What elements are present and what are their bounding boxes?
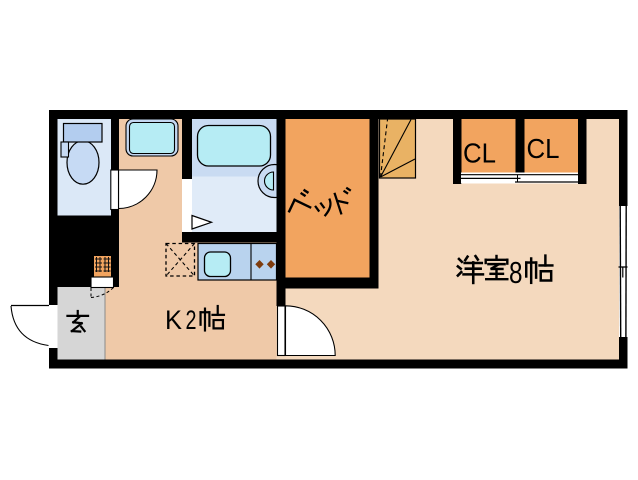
svg-text:K: K	[165, 305, 182, 335]
svg-text:2: 2	[186, 305, 197, 335]
svg-text:8: 8	[509, 255, 523, 290]
svg-text:CL: CL	[463, 138, 496, 169]
svg-text:CL: CL	[527, 133, 560, 164]
